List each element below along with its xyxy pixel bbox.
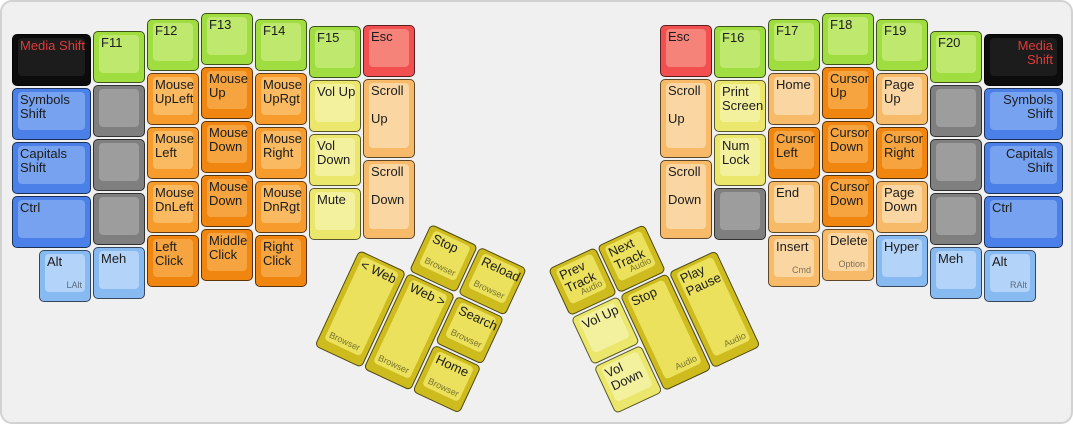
key-label: Insert [776, 240, 815, 254]
key-cursor-down[interactable]: Cursor Down [822, 121, 874, 173]
key-label: Cursor Up [830, 72, 869, 100]
key-mouse-left[interactable]: Mouse Left [147, 127, 199, 179]
key-label: F14 [263, 24, 302, 38]
key-f14[interactable]: F14 [255, 19, 307, 71]
key-alt-left[interactable]: AltLAlt [39, 250, 91, 302]
key-scroll-up-left[interactable]: Scroll Up [363, 79, 415, 158]
key-capitals-shift-right[interactable]: Capitals Shift [984, 142, 1063, 194]
key-label: Media Shift [20, 39, 86, 53]
key-label: Alt [47, 255, 86, 269]
key-mouse-upleft[interactable]: Mouse UpLeft [147, 73, 199, 125]
key-vol-up-left[interactable]: Vol Up [309, 80, 361, 132]
key-blank-r3[interactable] [930, 139, 982, 191]
key-scroll-up-right[interactable]: Scroll Up [660, 79, 712, 158]
key-mute[interactable]: Mute [309, 188, 361, 240]
key-label: Ctrl [20, 201, 86, 215]
key-capitals-shift-left[interactable]: Capitals Shift [12, 142, 91, 194]
keycap-top [936, 89, 976, 127]
key-f11[interactable]: F11 [93, 31, 145, 83]
key-symbols-shift-right[interactable]: Symbols Shift [984, 88, 1063, 140]
key-cursor-down-2[interactable]: Cursor Down [822, 175, 874, 227]
keyboard-layout-frame: Media ShiftSymbols ShiftCapitals ShiftCt… [0, 0, 1073, 424]
key-blank-r1[interactable] [714, 188, 766, 240]
key-label: Scroll Up [371, 84, 410, 126]
key-label: F18 [830, 18, 869, 32]
key-f16[interactable]: F16 [714, 26, 766, 78]
key-blank-l1[interactable] [93, 85, 145, 137]
key-mouse-dnrgt[interactable]: Mouse DnRgt [255, 181, 307, 233]
key-label: Meh [101, 252, 140, 266]
key-ctrl-left[interactable]: Ctrl [12, 196, 91, 248]
key-label: Scroll Up [668, 84, 707, 126]
key-esc-right[interactable]: Esc [660, 25, 712, 77]
key-mouse-down[interactable]: Mouse Down [201, 121, 253, 173]
key-label: Middle Click [209, 234, 248, 262]
key-cursor-left[interactable]: Cursor Left [768, 127, 820, 179]
keyboard-layout: Media ShiftSymbols ShiftCapitals ShiftCt… [2, 2, 1071, 422]
key-sublabel: Cmd [792, 265, 811, 275]
key-f18[interactable]: F18 [822, 13, 874, 65]
key-cursor-up[interactable]: Cursor Up [822, 67, 874, 119]
key-mouse-uprgt[interactable]: Mouse UpRgt [255, 73, 307, 125]
key-label: Cursor Down [830, 180, 869, 208]
key-page-down[interactable]: Page Down [876, 181, 928, 233]
key-cursor-right[interactable]: Cursor Right [876, 127, 928, 179]
key-label: Scroll Down [371, 165, 410, 207]
key-f19[interactable]: F19 [876, 19, 928, 71]
keycap-top [99, 143, 139, 181]
key-end-key[interactable]: End [768, 181, 820, 233]
key-mouse-right[interactable]: Mouse Right [255, 127, 307, 179]
key-right-click[interactable]: Right Click [255, 235, 307, 287]
key-label: F11 [101, 36, 140, 50]
key-hyper[interactable]: Hyper [876, 235, 928, 287]
key-f13[interactable]: F13 [201, 13, 253, 65]
key-label: Print Screen [722, 85, 761, 113]
keycap-top [936, 197, 976, 235]
keycap-top [720, 192, 760, 230]
key-label: F16 [722, 31, 761, 45]
key-label: Mouse UpLeft [155, 78, 194, 106]
key-label: Vol Up [317, 85, 356, 99]
key-label: F20 [938, 36, 977, 50]
key-label: F15 [317, 31, 356, 45]
key-meh-left[interactable]: Meh [93, 247, 145, 299]
key-insert-key[interactable]: InsertCmd [768, 235, 820, 287]
key-page-up[interactable]: Page Up [876, 73, 928, 125]
keycap-top [936, 143, 976, 181]
key-f17[interactable]: F17 [768, 19, 820, 71]
key-symbols-shift-left[interactable]: Symbols Shift [12, 88, 91, 140]
key-label: Symbols Shift [989, 93, 1053, 121]
key-label: Capitals Shift [20, 147, 86, 175]
key-label: Mouse Left [155, 132, 194, 160]
key-f20[interactable]: F20 [930, 31, 982, 83]
key-label: Mouse DnRgt [263, 186, 302, 214]
key-blank-l3[interactable] [93, 193, 145, 245]
key-vol-down-left[interactable]: Vol Down [309, 134, 361, 186]
key-ctrl-right[interactable]: Ctrl [984, 196, 1063, 248]
key-mouse-up[interactable]: Mouse Up [201, 67, 253, 119]
key-label: Capitals Shift [989, 147, 1053, 175]
key-delete-key[interactable]: DeleteOption [822, 229, 874, 281]
key-label: Esc [668, 30, 707, 44]
key-label: Scroll Down [668, 165, 707, 207]
key-label: Page Up [884, 78, 923, 106]
key-label: Mouse Down [209, 126, 248, 154]
key-media-shift-right[interactable]: Media Shift [984, 34, 1063, 86]
key-label: Media Shift [989, 39, 1053, 67]
key-label: Mouse DnLeft [155, 186, 194, 214]
key-label: Mute [317, 193, 356, 207]
key-blank-r4[interactable] [930, 193, 982, 245]
key-print-screen[interactable]: Print Screen [714, 80, 766, 132]
key-mouse-down-2[interactable]: Mouse Down [201, 175, 253, 227]
key-label: Delete [830, 234, 869, 248]
key-label: Vol Down [317, 139, 356, 167]
keycap-top [99, 197, 139, 235]
key-middle-click[interactable]: Middle Click [201, 229, 253, 281]
key-label: Alt [992, 255, 1031, 269]
key-sublabel: LAlt [66, 280, 82, 290]
key-label: Cursor Down [830, 126, 869, 154]
key-blank-r2[interactable] [930, 85, 982, 137]
key-label: F12 [155, 24, 194, 38]
key-media-shift-left[interactable]: Media Shift [12, 34, 91, 86]
key-label: Page Down [884, 186, 923, 214]
key-sublabel: RAlt [1010, 280, 1027, 290]
keycap-top [99, 89, 139, 127]
key-label: Num Lock [722, 139, 761, 167]
key-home-key[interactable]: Home [768, 73, 820, 125]
key-mouse-dnleft[interactable]: Mouse DnLeft [147, 181, 199, 233]
key-label: End [776, 186, 815, 200]
key-label: Symbols Shift [20, 93, 86, 121]
key-meh-right[interactable]: Meh [930, 247, 982, 299]
key-esc-left[interactable]: Esc [363, 25, 415, 77]
key-label: Ctrl [992, 201, 1058, 215]
key-label: Mouse Up [209, 72, 248, 100]
key-label: F17 [776, 24, 815, 38]
key-blank-l2[interactable] [93, 139, 145, 191]
key-label: Hyper [884, 240, 923, 254]
key-label: Mouse UpRgt [263, 78, 302, 106]
key-f12[interactable]: F12 [147, 19, 199, 71]
key-label: Cursor Right [884, 132, 923, 160]
key-label: Cursor Left [776, 132, 815, 160]
key-label: Left Click [155, 240, 194, 268]
key-label: Home [776, 78, 815, 92]
key-num-lock[interactable]: Num Lock [714, 134, 766, 186]
key-label: Mouse Right [263, 132, 302, 160]
key-label: Right Click [263, 240, 302, 268]
key-left-click[interactable]: Left Click [147, 235, 199, 287]
key-label: Meh [938, 252, 977, 266]
key-label: F13 [209, 18, 248, 32]
key-f15[interactable]: F15 [309, 26, 361, 78]
key-sublabel: Option [838, 259, 865, 269]
key-label: F19 [884, 24, 923, 38]
key-alt-right[interactable]: AltRAlt [984, 250, 1036, 302]
key-label: Mouse Down [209, 180, 248, 208]
key-label: Esc [371, 30, 410, 44]
